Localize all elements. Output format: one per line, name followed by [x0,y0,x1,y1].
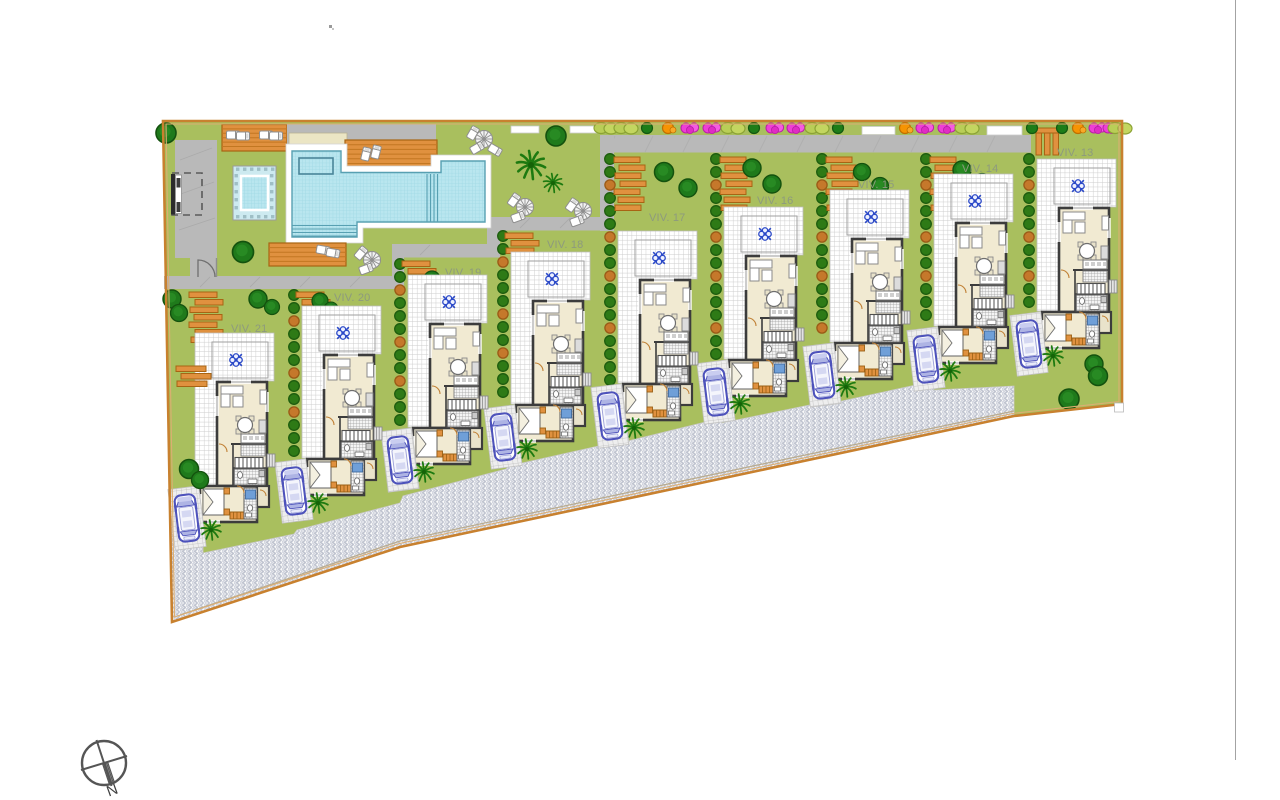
svg-text:VIV. 14: VIV. 14 [962,163,998,175]
svg-text:VIV. 15: VIV. 15 [858,179,894,191]
svg-text:VIV. 16: VIV. 16 [757,195,793,207]
svg-text:VIV. 17: VIV. 17 [649,212,685,224]
svg-text:VIV. 18: VIV. 18 [547,239,583,251]
svg-text:VIV. 20: VIV. 20 [334,292,370,304]
svg-text:VIV. 13: VIV. 13 [1057,147,1093,159]
